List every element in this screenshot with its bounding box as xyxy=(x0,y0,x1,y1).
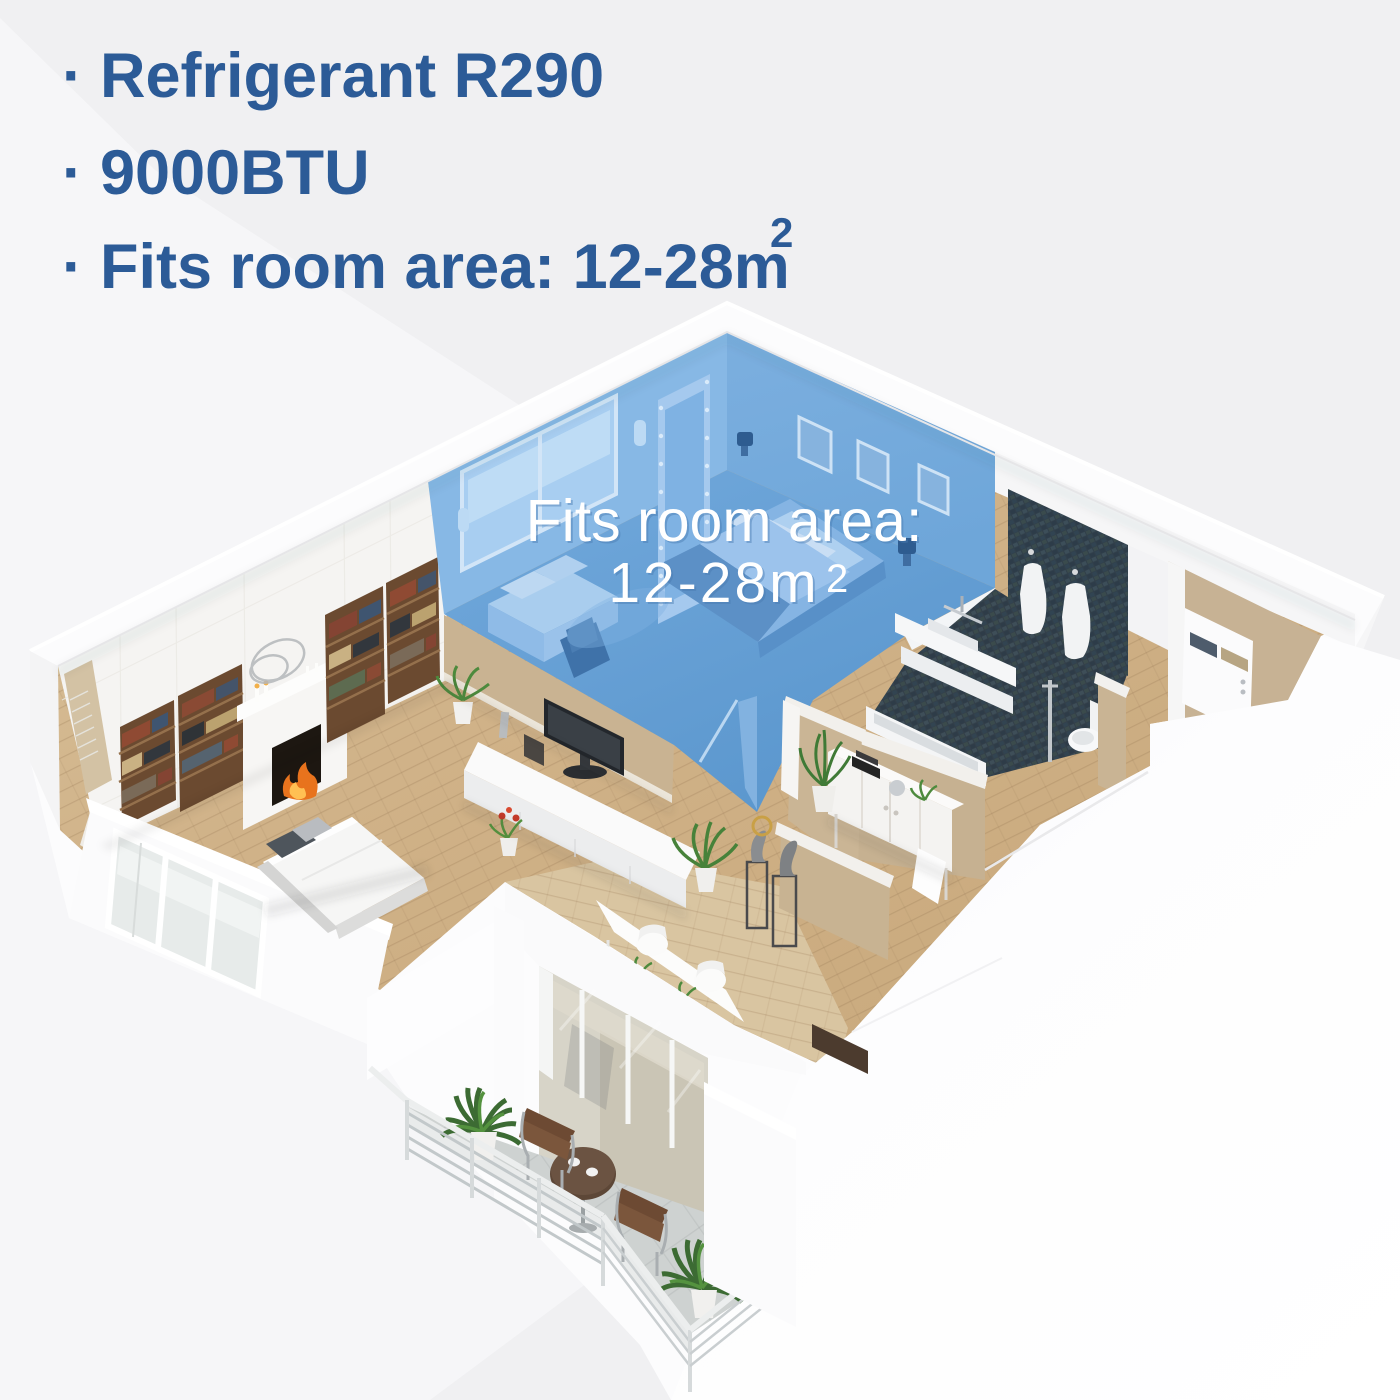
svg-text:·: · xyxy=(62,232,83,302)
svg-text:Fits room area:: Fits room area: xyxy=(526,488,923,554)
svg-text:·: · xyxy=(62,41,83,111)
svg-text:Fits room area: 12-28m: Fits room area: 12-28m xyxy=(100,232,790,302)
svg-text:Refrigerant R290: Refrigerant R290 xyxy=(100,41,604,111)
svg-text:12-28m: 12-28m xyxy=(608,551,819,615)
svg-text:9000BTU: 9000BTU xyxy=(100,138,370,208)
svg-text:2: 2 xyxy=(770,209,793,256)
svg-text:2: 2 xyxy=(826,557,848,601)
svg-text:·: · xyxy=(62,138,83,208)
